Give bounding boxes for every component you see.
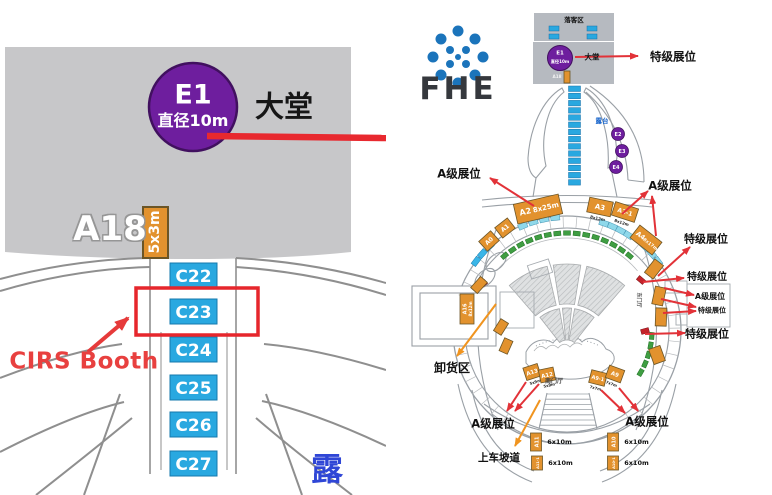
- arc-booth: [564, 231, 571, 236]
- booth-label: C24: [175, 341, 211, 361]
- svg-text:A11-1: A11-1: [536, 457, 540, 469]
- arc-booth: [573, 231, 580, 236]
- corner-character: 露: [311, 453, 343, 485]
- svg-text:6x10m: 6x10m: [547, 438, 572, 446]
- svg-text:A11: A11: [534, 436, 540, 447]
- label-unloading: 卸货区: [434, 362, 470, 374]
- booth-east-3: [655, 308, 667, 326]
- booth-label: C23: [175, 303, 211, 323]
- arc-booth: [554, 231, 561, 236]
- svg-text:6x10m: 6x10m: [624, 459, 649, 467]
- fhe-logo-dot: [478, 52, 489, 63]
- label-dropoff: 落客区: [564, 17, 584, 24]
- label-alevel-bottomright: A级展位: [625, 416, 668, 428]
- c-booth: [569, 165, 581, 171]
- booth-label: E4: [613, 165, 620, 171]
- lobby-label: 大堂: [255, 93, 313, 122]
- svg-text:A10: A10: [611, 436, 617, 447]
- svg-text:A10-1: A10-1: [612, 457, 616, 469]
- label-east-hall: 东门厅: [636, 292, 641, 307]
- label-terrace: 露台: [596, 118, 609, 125]
- a18-size-label: 5x3m: [148, 210, 162, 253]
- c-booth: [569, 93, 581, 99]
- legend-booth-a11-1: A11-16x10m: [532, 456, 573, 470]
- fhe-logo-dot: [436, 34, 447, 45]
- booth-label: C25: [175, 379, 211, 399]
- c-booth: [569, 144, 581, 150]
- label-special-4: 特级展位: [698, 308, 726, 315]
- left-panel-zoomed-map: C22C23C24C25C26C27 E1 直径10m 大堂 A18 5x3m …: [0, 0, 386, 495]
- c-booth: [569, 115, 581, 121]
- c-booth: [569, 108, 581, 114]
- lobby-area: [533, 42, 614, 84]
- booth-label: C26: [175, 416, 211, 436]
- label-lobby-a18: A18: [552, 75, 561, 79]
- c-booth: [569, 129, 581, 135]
- left-map-svg: C22C23C24C25C26C27: [0, 0, 386, 495]
- c-booth: [569, 158, 581, 164]
- dropoff-booth: [549, 26, 559, 31]
- label-special-3: 特级展位: [687, 273, 727, 283]
- fhe-logo-dot: [462, 60, 470, 68]
- annotation-arrow: [645, 333, 685, 334]
- fhe-logo-dot: [470, 34, 481, 45]
- svg-text:6x10m: 6x10m: [624, 438, 649, 446]
- c-booth: [569, 122, 581, 128]
- booth-label: E2: [615, 132, 622, 138]
- annotation-arrow: [658, 247, 690, 276]
- a18-label: A18: [73, 212, 147, 246]
- booth-lobby-a18: [564, 71, 570, 83]
- dropoff-booth: [549, 34, 559, 39]
- c-booth: [569, 86, 581, 92]
- fhe-logo-dot: [462, 46, 470, 54]
- c-booth-column: C22C23C24C25C26C27: [170, 263, 217, 476]
- callout-line: [207, 136, 386, 138]
- fhe-logo-dot: [453, 26, 464, 37]
- label-alevel-topright: A级展位: [648, 180, 691, 192]
- booth-label: C27: [175, 455, 211, 475]
- c-booth: [569, 180, 581, 186]
- label-special-top: 特级展位: [650, 51, 696, 63]
- label-special-2: 特级展位: [684, 234, 728, 245]
- fhe-logo-dot: [446, 46, 454, 54]
- svg-text:6x10m: 6x10m: [548, 459, 573, 467]
- dropoff-booth: [587, 34, 597, 39]
- label-alevel-bottomleft: A级展位: [471, 418, 514, 430]
- booth-label: C22: [175, 267, 211, 287]
- annotation-arrow: [652, 196, 656, 236]
- legend-booth-a10: A106x10m: [608, 433, 649, 451]
- label-ramp: 上车坡道: [478, 453, 520, 464]
- right-panel-overview-map: E2E3E4A28x25mA38x12mA3-18x12mA48x17mA1A0…: [386, 0, 772, 495]
- label-south-hall: 南门厅: [545, 379, 563, 385]
- exhibition-floorplan: C22C23C24C25C26C27 E1 直径10m 大堂 A18 5x3m …: [0, 0, 772, 495]
- annotation-arrow: [490, 178, 534, 206]
- c-booth: [569, 100, 581, 106]
- booth-a16: A168x12m: [460, 294, 474, 324]
- label-special-5: 特级展位: [685, 329, 729, 340]
- svg-text:8x12m: 8x12m: [468, 301, 473, 316]
- fhe-logo-dot: [428, 52, 439, 63]
- e1-diameter-label: 直径10m: [158, 113, 229, 129]
- label-alevel-topleft: A级展位: [437, 168, 480, 180]
- c-booth: [569, 151, 581, 157]
- fhe-logo-dot: [446, 60, 454, 68]
- label-e1-sub: 直径10m: [551, 60, 570, 64]
- fhe-logo-text: FHE: [419, 71, 496, 107]
- label-e1: E1: [556, 51, 564, 57]
- c-booth: [569, 172, 581, 178]
- booth-label: E3: [619, 149, 626, 155]
- label-hall: 大堂: [585, 53, 600, 61]
- label-alevel-right: A级展位: [695, 293, 725, 301]
- dropoff-booth: [587, 26, 597, 31]
- c-booth: [569, 136, 581, 142]
- booth-column-walls: [150, 258, 236, 474]
- cirs-booth-label: CIRS Booth: [9, 351, 158, 374]
- fhe-logo-dot: [455, 54, 461, 60]
- e1-booth-label: E1: [174, 82, 211, 109]
